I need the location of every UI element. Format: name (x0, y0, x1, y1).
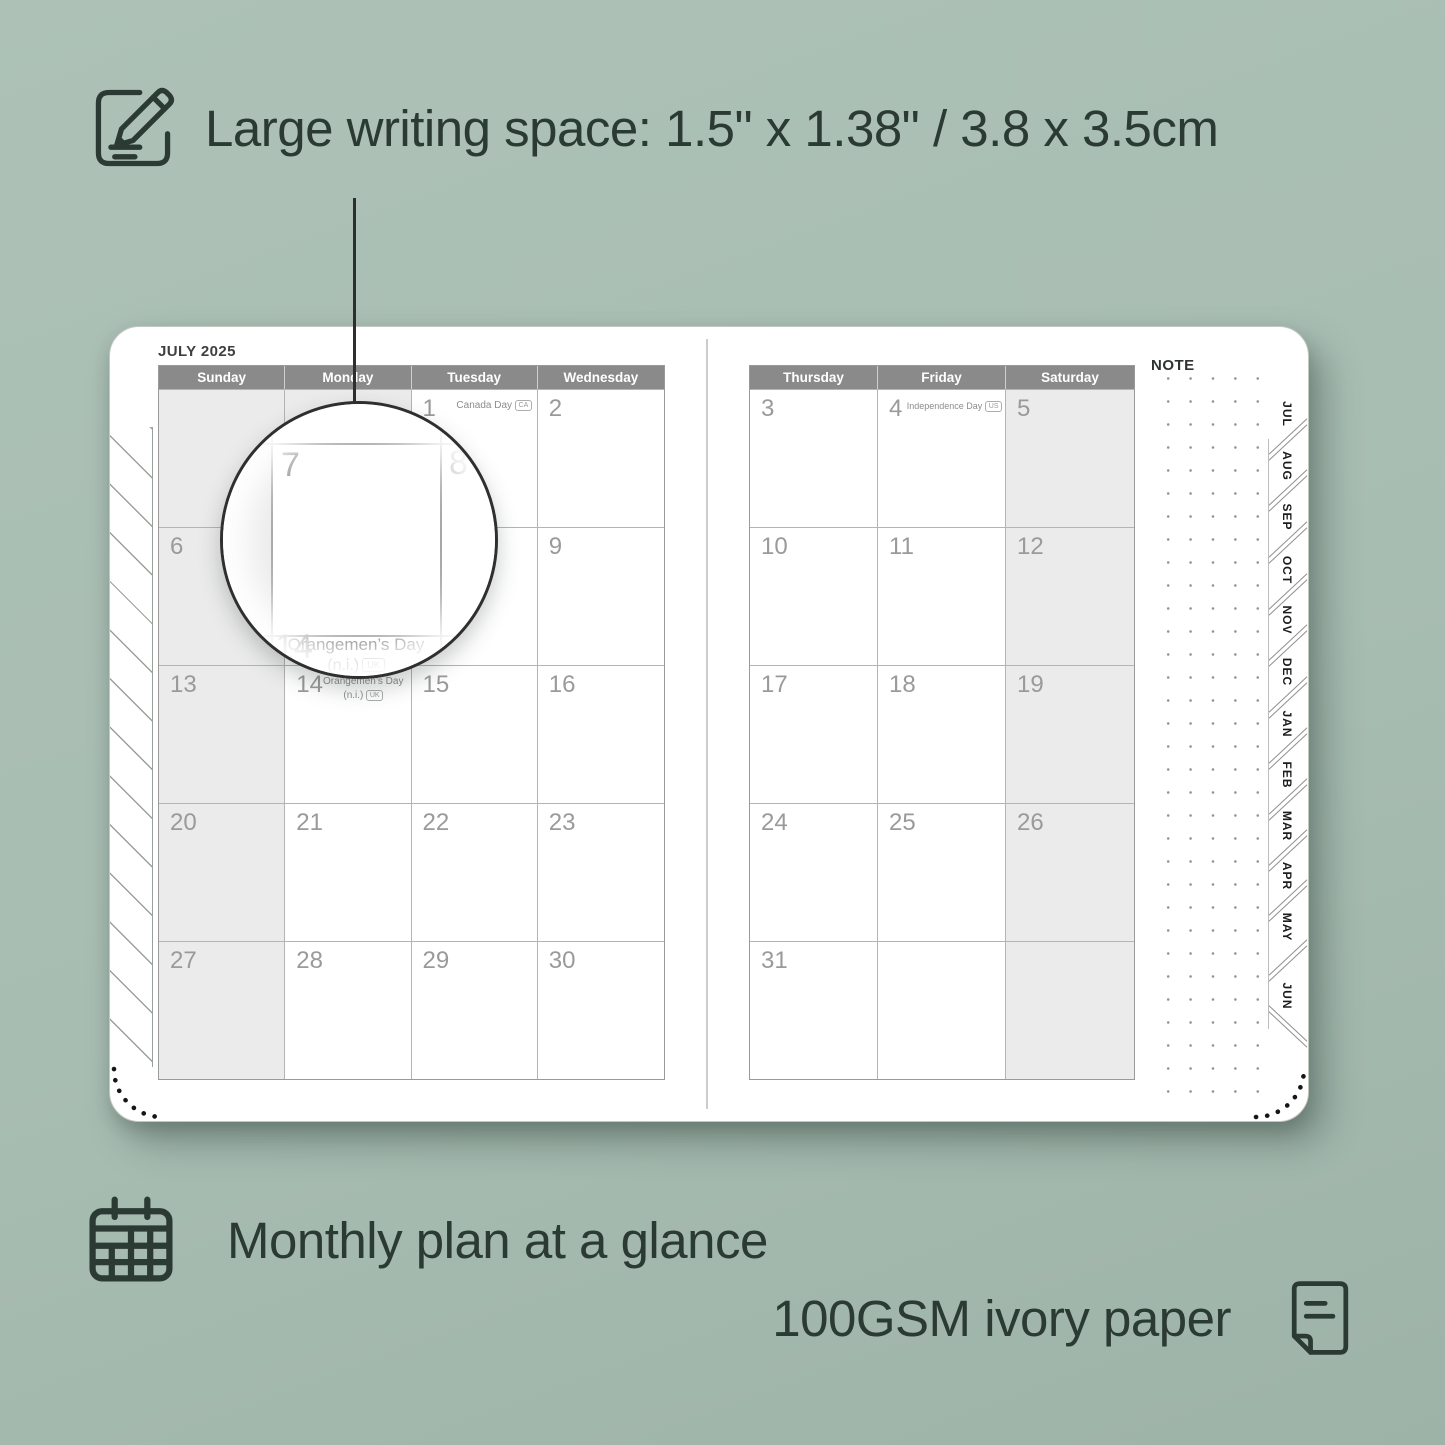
feature-writing-space: Large writing space: 1.5" x 1.38" / 3.8 … (85, 80, 1218, 176)
holiday-canada-day: Canada DayCA (456, 400, 531, 411)
callout-line (353, 198, 356, 403)
tab-apr: APR (1272, 854, 1302, 898)
product-infographic: Large writing space: 1.5" x 1.38" / 3.8 … (0, 0, 1445, 1445)
weekday-header: Sunday (159, 366, 285, 389)
country-badge: UK (362, 658, 385, 672)
tab-jan: JAN (1272, 702, 1302, 746)
calendar-cell: 22 (412, 803, 538, 941)
calendar-cell: 11 (878, 527, 1006, 665)
calendar-cell: 18 (878, 665, 1006, 803)
calendar-cell: 17 (750, 665, 878, 803)
note-dot-grid (1151, 359, 1263, 1101)
magnified-day-7: 7 (281, 446, 300, 485)
tab-may: MAY (1272, 905, 1302, 949)
country-badge: UK (366, 690, 383, 701)
tab-jul: JUL (1272, 392, 1302, 436)
country-badge: CA (515, 400, 532, 411)
country-badge: US (985, 401, 1002, 412)
calendar-cell-orangemens-day: 14 Orangemen’s Day (n.i.)UK (285, 665, 411, 803)
calendar-right-page: Thursday Friday Saturday 3 4 Independenc… (749, 365, 1135, 1080)
calendar-cell (878, 941, 1006, 1079)
notepad-pencil-icon (85, 80, 181, 176)
tab-separator (1266, 954, 1310, 968)
weekday-header: Wednesday (538, 366, 664, 389)
calendar-icon (83, 1192, 179, 1288)
calendar-cell: 27 (159, 941, 285, 1079)
calendar-cell: 9 (538, 527, 664, 665)
calendar-cell: 2 (538, 389, 664, 527)
calendar-cell: 3 (750, 389, 878, 527)
tab-separator (1266, 1020, 1310, 1034)
magnified-holiday: Orangemen’s Day (n.i.)UK (263, 635, 449, 675)
calendar-cell-independence-day: 4 Independence DayUS (878, 389, 1006, 527)
calendar-cell: 10 (750, 527, 878, 665)
feature-monthly-text: Monthly plan at a glance (227, 1211, 768, 1270)
feature-paper: 100GSM ivory paper (772, 1262, 1357, 1374)
calendar-cell: 30 (538, 941, 664, 1079)
weekday-header: Monday (285, 366, 411, 389)
tab-aug: AUG (1272, 444, 1302, 488)
weekday-header: Saturday (1006, 366, 1134, 389)
tab-nov: NOV (1272, 598, 1302, 642)
feature-monthly-plan: Monthly plan at a glance (83, 1192, 768, 1288)
tab-feb: FEB (1272, 753, 1302, 797)
note-label: NOTE (1151, 357, 1201, 374)
holiday-orangemens-day: Orangemen’s Day (n.i.)UK (318, 675, 408, 703)
weekday-header: Friday (878, 366, 1006, 389)
holiday-independence-day: Independence DayUS (907, 401, 1002, 412)
calendar-cell: 19 (1006, 665, 1134, 803)
tab-strip-edge (1268, 439, 1269, 1029)
tab-oct: OCT (1272, 548, 1302, 592)
calendar-cell: 24 (750, 803, 878, 941)
calendar-cell: 31 (750, 941, 878, 1079)
feature-paper-text: 100GSM ivory paper (772, 1289, 1231, 1348)
calendar-cell: 5 (1006, 389, 1134, 527)
weekday-header: Tuesday (412, 366, 538, 389)
calendar-cell: 28 (285, 941, 411, 1079)
weekday-header: Thursday (750, 366, 878, 389)
calendar-cell: 29 (412, 941, 538, 1079)
calendar-cell: 26 (1006, 803, 1134, 941)
tab-mar: MAR (1272, 804, 1302, 848)
calendar-cell: 15 (412, 665, 538, 803)
calendar-cell: 25 (878, 803, 1006, 941)
month-title: JULY 2025 (158, 343, 236, 360)
tab-dec: DEC (1272, 650, 1302, 694)
page-edge-hatching (110, 427, 153, 1067)
calendar-cell: 12 (1006, 527, 1134, 665)
calendar-cell: 13 (159, 665, 285, 803)
tab-sep: SEP (1272, 495, 1302, 539)
magnified-day-8: 8 (449, 444, 468, 483)
feature-writing-space-text: Large writing space: 1.5" x 1.38" / 3.8 … (205, 99, 1218, 158)
calendar-cell: 21 (285, 803, 411, 941)
magnifier-circle: 7 8 14 Orangemen’s Day (n.i.)UK (220, 401, 498, 679)
calendar-cell: 16 (538, 665, 664, 803)
calendar-cell: 20 (159, 803, 285, 941)
calendar-cell: 23 (538, 803, 664, 941)
page-spine (706, 339, 708, 1109)
paper-sheet-icon (1271, 1262, 1357, 1374)
calendar-cell (1006, 941, 1134, 1079)
